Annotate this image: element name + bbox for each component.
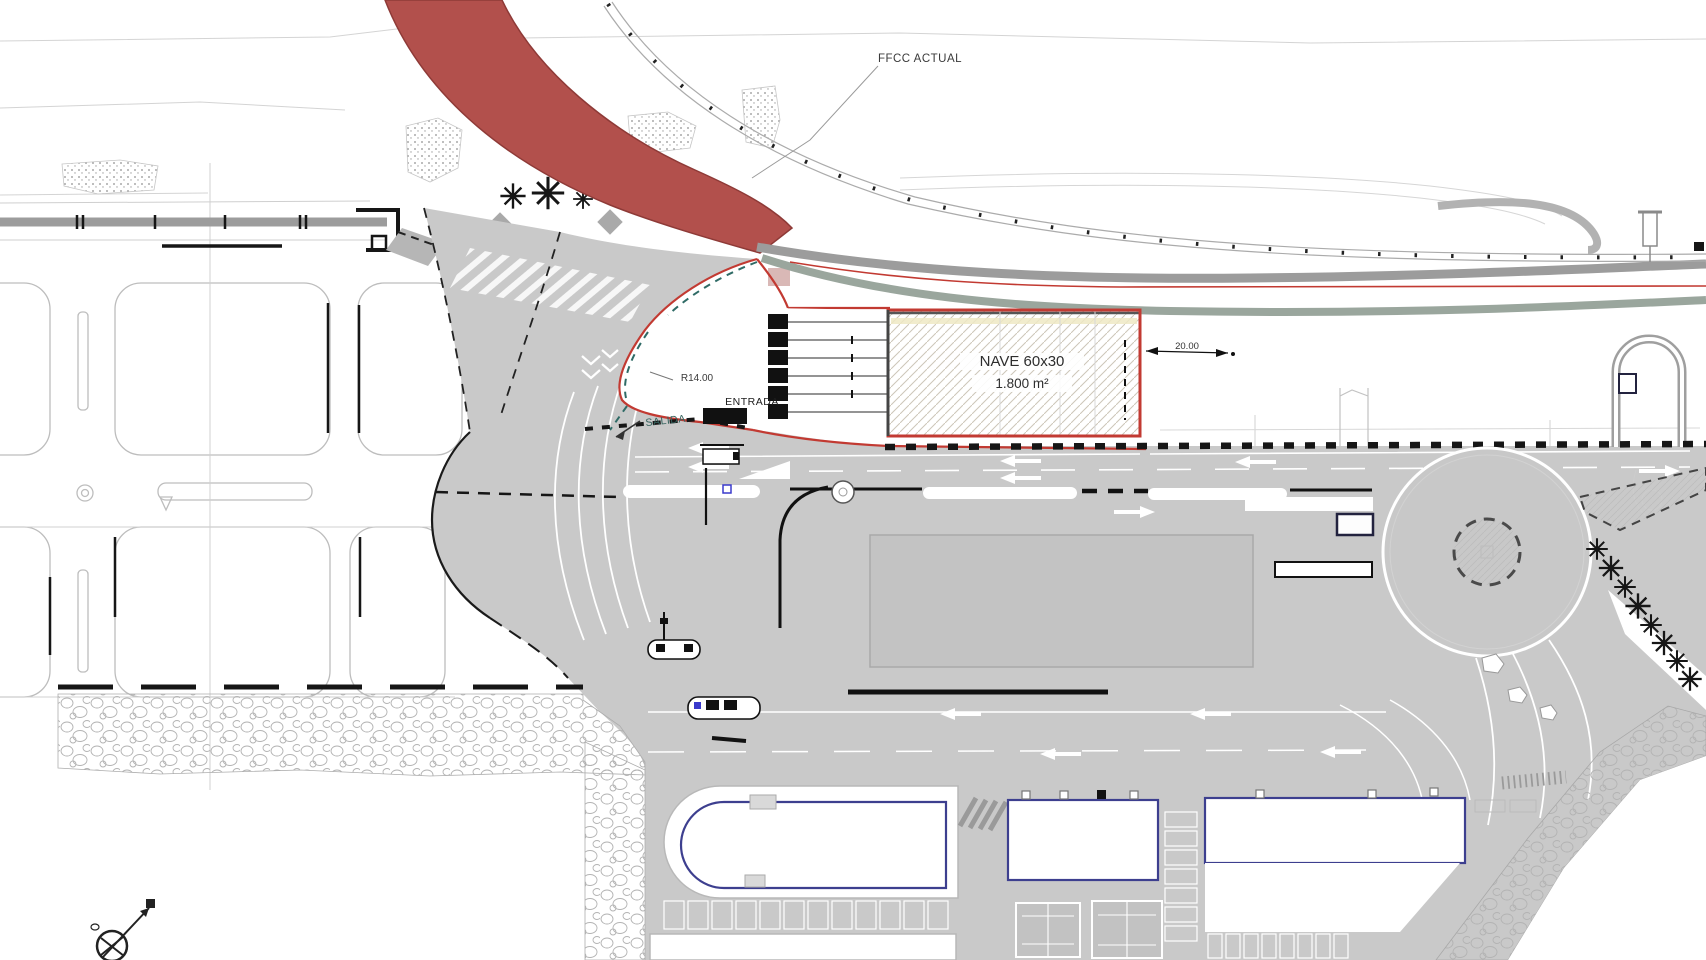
- roundabout: [1383, 448, 1591, 656]
- site-plan-svg: FFCC ACTUAL: [0, 0, 1706, 960]
- shelter-box-blue: [1337, 514, 1373, 535]
- entrance-gate: [703, 408, 747, 424]
- dimension-20: 20.00: [1146, 341, 1235, 357]
- faint-parcel-lines: [1255, 388, 1550, 446]
- median-island: [78, 570, 88, 672]
- entrada-label: ENTRADA: [725, 396, 779, 408]
- building-b2: [1008, 800, 1158, 880]
- edge-marker: [1694, 242, 1704, 251]
- median-island: [78, 312, 88, 410]
- loading-docks: [766, 308, 888, 436]
- warehouse-nave: NAVE 60x30 1.800 m²: [888, 310, 1140, 436]
- building-b4: [650, 934, 956, 960]
- riprap-slope-sw: [58, 687, 645, 960]
- ffcc-actual-label: FFCC ACTUAL: [878, 53, 962, 65]
- site-plan-drawing: FFCC ACTUAL: [0, 0, 1706, 960]
- width-dim-label: 20.00: [1175, 341, 1199, 352]
- radius-label: R14.00: [681, 373, 714, 384]
- east-road-bands: [757, 247, 1706, 312]
- ramp-loop-road: [1438, 202, 1597, 250]
- railway-callout: FFCC ACTUAL: [752, 53, 962, 178]
- blue-marker-square: [723, 485, 731, 493]
- blue-outline-structure: [1619, 374, 1636, 393]
- blue-marker-square: [694, 702, 701, 709]
- north-arrow: [91, 899, 155, 960]
- nave-area-label: 1.800 m²: [995, 376, 1049, 391]
- bus-bay-box: [1275, 562, 1372, 577]
- building-b1: [681, 802, 946, 888]
- inner-yard-pad: [870, 535, 1253, 667]
- roundabout-island: [1454, 519, 1520, 585]
- building-b3: [1205, 798, 1465, 863]
- manhole-symbol: [77, 485, 93, 501]
- long-island: [158, 483, 312, 500]
- nave-top-strip: [891, 318, 1137, 324]
- parcel-edge-marks: [50, 303, 360, 655]
- nave-name-label: NAVE 60x30: [980, 353, 1065, 370]
- top-road-band: [0, 201, 387, 246]
